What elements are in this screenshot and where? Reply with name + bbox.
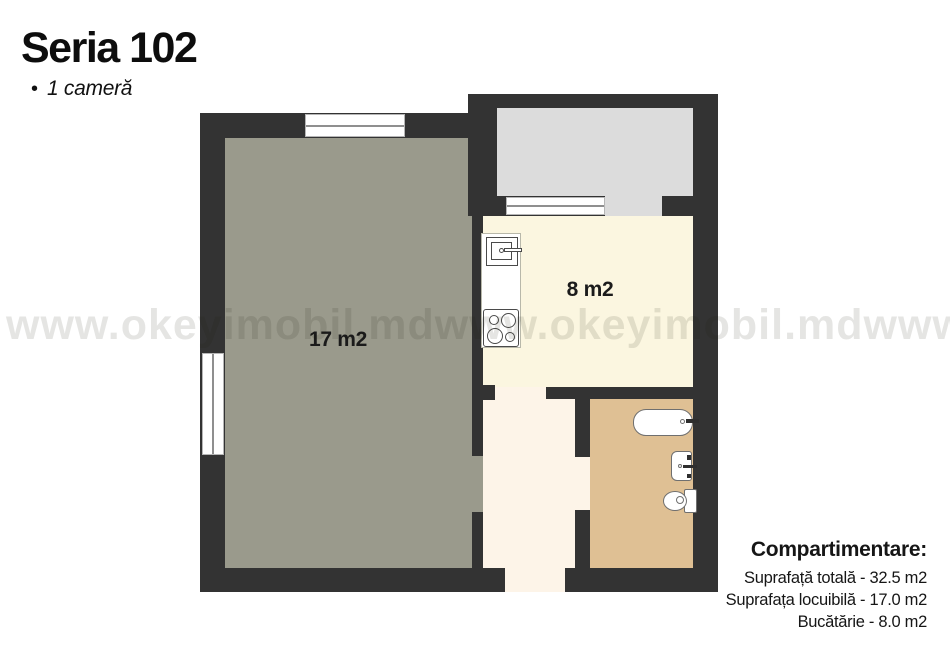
toilet-icon [663,488,699,514]
bottom-wall [200,568,718,592]
room-count-label: 1 cameră [47,77,132,101]
tub-faucet-knob [680,419,685,424]
toilet-bowl-inner [676,496,684,504]
hallway-bathroom-door-opening [575,457,590,510]
floor-plan-page: Seria 102 • 1 cameră [0,0,950,672]
basin-tap-mark [687,455,691,460]
basin-tap-mark [687,474,691,478]
kitchen-sink-icon [486,237,518,266]
stove-burner [501,313,516,328]
kitchen-bottom-wall-left [472,385,495,400]
balcony-window [506,197,605,215]
sink-faucet-arm [504,248,522,252]
bathroom-wall-upper [575,399,590,457]
kitchen-area-label: 8 m2 [567,278,614,302]
bathroom-wall-lower [575,510,590,568]
tub-faucet-arm [686,419,699,423]
room-count-row: • 1 cameră [31,77,196,101]
left-wall-window [202,353,224,455]
basin-faucet-arm [683,465,697,468]
living-room-area [225,137,483,568]
living-hallway-door-opening [472,456,483,512]
legend-line-total-area: Suprafață totală - 32.5 m2 [726,567,927,589]
balcony-top-wall [468,94,718,108]
living-room-area-label: 17 m2 [309,328,367,352]
watermark-text: www.okeyimobil.md [864,301,950,349]
window-pane-line [306,125,404,127]
bullet-icon: • [31,79,38,99]
stove-icon [483,309,519,347]
stove-burner [487,328,503,344]
right-wall [693,94,718,592]
page-title: Seria 102 [21,26,196,71]
top-wall-window [305,114,405,137]
kitchen-hallway-door-opening [495,387,546,400]
living-divider-wall-lower [472,512,483,568]
legend-line-living-area: Suprafața locuibilă - 17.0 m2 [726,589,927,611]
balcony-area [497,108,693,196]
stove-burner [489,315,499,325]
legend-title: Compartimentare: [726,538,927,562]
hallway-area [483,399,575,568]
basin-drain [678,464,682,468]
bathtub-icon [633,409,693,436]
legend-line-kitchen-area: Bucătărie - 8.0 m2 [726,611,927,633]
entrance-door-opening [505,568,565,592]
window-pane-line [507,205,604,207]
washbasin-icon [671,451,692,481]
legend: Compartimentare: Suprafață totală - 32.5… [726,538,927,633]
kitchen-bottom-wall [546,387,693,399]
window-pane-line [212,354,214,454]
balcony-door-opening [605,196,662,216]
header: Seria 102 • 1 cameră [21,26,196,101]
stove-burner [505,332,515,342]
